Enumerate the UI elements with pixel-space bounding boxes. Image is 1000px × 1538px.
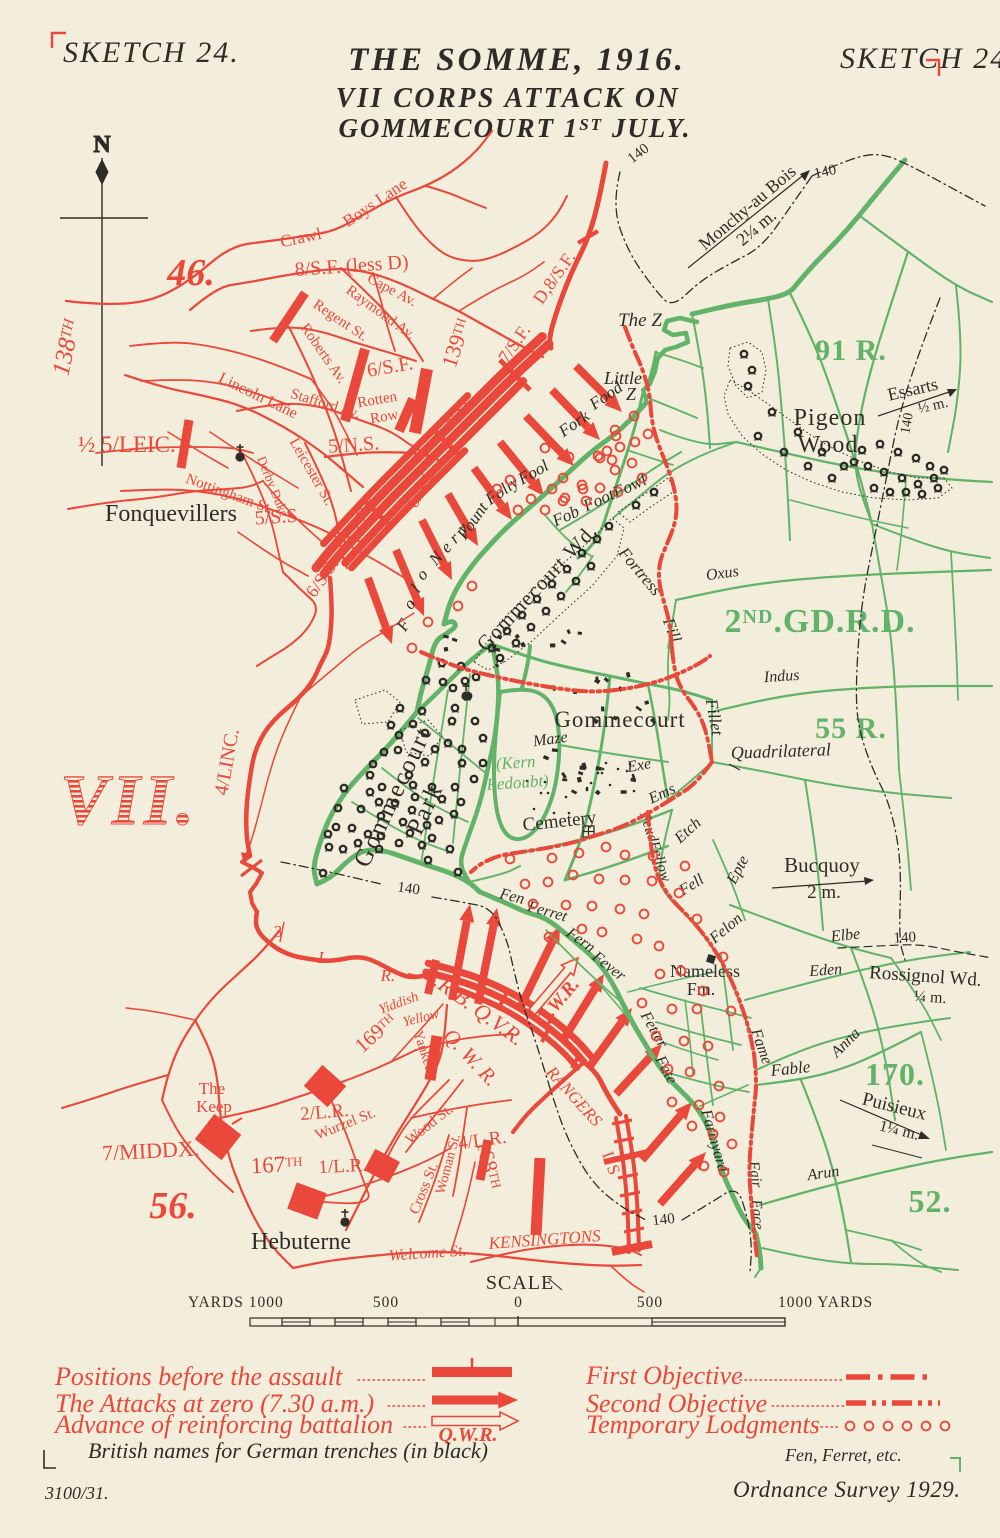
svg-text:56.: 56. <box>149 1185 197 1227</box>
svg-text:Temporary Lodgments: Temporary Lodgments <box>586 1410 820 1439</box>
svg-text:Hebuterne: Hebuterne <box>251 1229 351 1255</box>
svg-text:½ 5/LEIC.: ½ 5/LEIC. <box>78 432 176 457</box>
svg-text:140: 140 <box>652 1211 676 1229</box>
svg-text:Fen, Ferret, etc.: Fen, Ferret, etc. <box>784 1445 902 1465</box>
svg-text:Advance of reinforcing battali: Advance of reinforcing battalion <box>53 1410 393 1439</box>
svg-text:1/L.R.: 1/L.R. <box>318 1155 368 1179</box>
svg-text:(Kern: (Kern <box>495 752 536 774</box>
svg-text:170.: 170. <box>865 1056 925 1092</box>
svg-text:British names for German trenc: British names for German trenches (in bl… <box>88 1438 488 1463</box>
svg-text:500: 500 <box>637 1294 663 1311</box>
svg-text:Wood: Wood <box>798 432 859 458</box>
svg-text:Z: Z <box>626 384 637 404</box>
svg-text:VII.: VII. <box>60 760 198 840</box>
svg-text:3100/31.: 3100/31. <box>44 1483 109 1503</box>
svg-text:Ordnance Survey 1929.: Ordnance Survey 1929. <box>733 1477 960 1502</box>
svg-text:46.: 46. <box>166 252 215 294</box>
svg-text:SKETCH 24.: SKETCH 24. <box>63 36 240 69</box>
svg-text:2 m.: 2 m. <box>807 882 841 903</box>
svg-text:SCALE: SCALE <box>486 1272 554 1294</box>
svg-text:YARDS 1000: YARDS 1000 <box>188 1294 284 1311</box>
svg-text:Bucquoy: Bucquoy <box>784 853 860 877</box>
svg-text:GOMMECOURT 1ST JULY.: GOMMECOURT 1ST JULY. <box>338 113 691 143</box>
svg-text:Eden: Eden <box>808 961 843 980</box>
svg-text:THE SOMME, 1916.: THE SOMME, 1916. <box>348 42 686 78</box>
svg-text:The: The <box>199 1079 225 1098</box>
svg-text:Indus: Indus <box>762 667 800 687</box>
svg-text:5/S.S.: 5/S.S. <box>254 504 303 529</box>
svg-text:Elbe: Elbe <box>829 926 861 946</box>
svg-text:¼ m.: ¼ m. <box>914 988 948 1007</box>
svg-text:VII CORPS ATTACK ON: VII CORPS ATTACK ON <box>336 83 680 114</box>
svg-text:Pigeon: Pigeon <box>794 405 867 431</box>
svg-text:R.: R. <box>380 966 396 985</box>
svg-text:Fonquevillers: Fonquevillers <box>105 501 237 527</box>
svg-text:1000 YARDS: 1000 YARDS <box>778 1294 873 1311</box>
svg-text:Positions before the assault: Positions before the assault <box>54 1362 343 1391</box>
svg-text:Quadrilateral: Quadrilateral <box>730 739 831 762</box>
svg-text:5/N.S.: 5/N.S. <box>327 432 380 458</box>
svg-text:Fm.: Fm. <box>687 979 716 999</box>
svg-text:Keep: Keep <box>196 1097 232 1116</box>
svg-text:140: 140 <box>396 880 421 899</box>
svg-text:N: N <box>93 132 111 158</box>
svg-text:7/MIDDX.: 7/MIDDX. <box>101 1135 199 1165</box>
svg-text:140: 140 <box>893 929 916 946</box>
svg-text:Gommecourt: Gommecourt <box>554 707 685 732</box>
svg-text:52.: 52. <box>909 1183 952 1219</box>
svg-text:500: 500 <box>373 1294 399 1311</box>
svg-text:SKETCH 24: SKETCH 24 <box>840 42 1000 75</box>
svg-text:91 R.: 91 R. <box>815 334 887 367</box>
svg-text:First Objective: First Objective <box>585 1361 743 1390</box>
svg-text:0: 0 <box>514 1294 522 1311</box>
svg-text:L.: L. <box>317 948 332 967</box>
